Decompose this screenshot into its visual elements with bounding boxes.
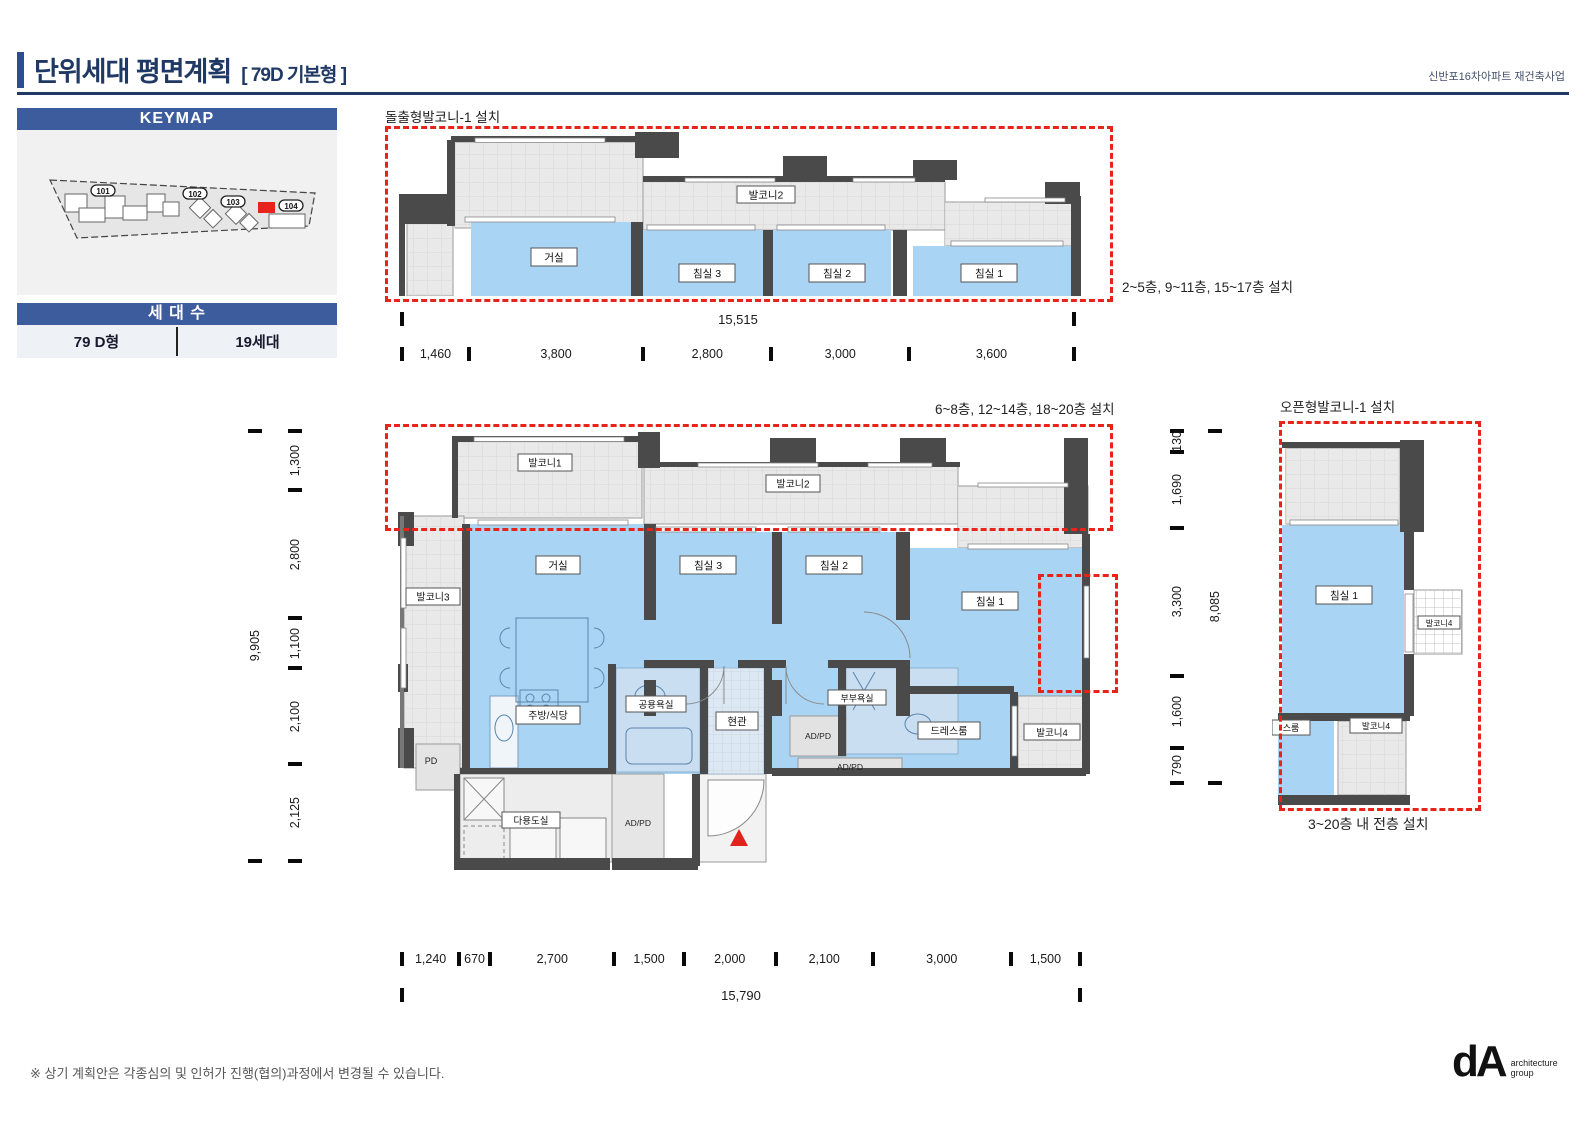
room-label-living: 거실: [544, 252, 563, 264]
page-title-text: 단위세대 평면계획: [34, 57, 231, 87]
logo-mark: dA: [1452, 1042, 1505, 1082]
unit-type: 79 D형: [17, 325, 176, 358]
open-plan-label: 오픈형발코니-1 설치: [1280, 396, 1395, 416]
page-title: 단위세대 평면계획[ 79D 기본형 ]: [34, 50, 346, 89]
room-label-entrance: 현관: [727, 716, 747, 728]
top-plan-floors-note: 2~5층, 9~11층, 15~17층 설치: [1122, 276, 1293, 296]
keymap-badge-103: 103: [226, 198, 240, 207]
keymap-body: 101 102 103 104: [17, 130, 337, 295]
dim-seg: 790: [1168, 748, 1186, 783]
room-label-balcony4-low: 발코니4: [1362, 721, 1390, 731]
room-label-balcony1: 발코니1: [528, 458, 562, 470]
dim-seg: 1,240: [402, 951, 459, 967]
room-label-bed1: 침실 1: [976, 596, 1004, 608]
dim-seg: 1,460: [402, 346, 469, 362]
room-label-dress-partial: 스룸: [1283, 723, 1300, 733]
dim-seg: 1,600: [1168, 676, 1186, 748]
room-label-living: 거실: [548, 560, 567, 572]
title-accent-bar: [17, 52, 24, 88]
dim-seg: 2,125: [286, 764, 304, 861]
dim-seg: 3,000: [771, 346, 909, 362]
dim-seg: 2,100: [286, 668, 304, 764]
room-label-bed2: 침실 2: [823, 268, 851, 280]
room-label-adpd-2: AD/PD: [837, 762, 863, 772]
page-subtitle: [ 79D 기본형 ]: [241, 65, 346, 86]
room-label-bed1: 침실 1: [1330, 590, 1358, 602]
room-label-bed3: 침실 3: [694, 560, 722, 572]
room-label-pd: PD: [425, 756, 438, 766]
dim-seg: 2,700: [490, 951, 614, 967]
units-header: 세 대 수: [17, 303, 337, 325]
dim-left-total: 9,905: [246, 431, 264, 861]
room-label-adpd-1: AD/PD: [805, 731, 831, 741]
room-label-bed1: 침실 1: [975, 268, 1003, 280]
dim-seg: 3,000: [873, 951, 1011, 967]
dim-seg: 1,100: [286, 618, 304, 668]
dim-top-total: 15,515: [402, 311, 1074, 327]
project-name: 신반포16차아파트 재건축사업: [1428, 68, 1565, 84]
room-label-adpd-3: AD/PD: [625, 818, 651, 828]
plan-sheet: 단위세대 평면계획[ 79D 기본형 ] 신반포16차아파트 재건축사업 KEY…: [0, 0, 1587, 1123]
room-label-balcony3: 발코니3: [416, 592, 450, 604]
dim-seg: 3,800: [469, 346, 643, 362]
keymap-badge-102: 102: [188, 190, 202, 199]
dim-seg: 2,800: [286, 490, 304, 618]
open-plan-drawing: 침실 1 발코니4 스룸 발코니4: [1272, 418, 1477, 810]
logo-text: architecture group: [1511, 1058, 1558, 1078]
main-plan-floors-note: 6~8층, 12~14층, 18~20층 설치: [935, 398, 1115, 418]
keymap-header: KEYMAP: [17, 108, 337, 130]
dim-right-segments: 130 1,690 3,300 1,600 790: [1168, 431, 1186, 783]
room-label-dress: 드레스룸: [931, 726, 968, 738]
dim-seg: 1,500: [1011, 951, 1080, 967]
open-plan-floors-note: 3~20층 내 전층 설치: [1308, 814, 1428, 834]
dim-seg: 670: [459, 951, 490, 967]
dim-seg: 3,300: [1168, 528, 1186, 676]
dim-seg: 1,300: [286, 431, 304, 490]
room-label-bed2: 침실 2: [820, 560, 848, 572]
top-plan-drawing: 발코니2 거실 침실 3 침실 2 침실 1: [385, 126, 1108, 296]
unit-count: 19세대: [178, 325, 337, 358]
room-label-utility: 다용도실: [514, 816, 549, 827]
logo-text-line2: group: [1511, 1068, 1534, 1078]
dim-seg: 3,600: [909, 346, 1074, 362]
units-row: 79 D형 19세대: [17, 325, 337, 358]
logo-text-line1: architecture: [1511, 1058, 1558, 1068]
top-plan-label: 돌출형발코니-1 설치: [385, 106, 500, 126]
dim-bottom-segments: 1,240 670 2,700 1,500 2,000 2,100 3,000 …: [402, 951, 1080, 967]
header-rule: [17, 92, 1569, 95]
dim-seg: 130: [1168, 431, 1186, 452]
dim-bottom-total: 15,790: [402, 987, 1080, 1003]
room-label-bath-master: 부부욕실: [840, 694, 873, 704]
dim-top-segments: 1,460 3,800 2,800 3,000 3,600: [402, 346, 1074, 362]
dim-seg: 2,800: [643, 346, 771, 362]
keymap-badge-101: 101: [96, 187, 110, 196]
room-label-balcony4: 발코니4: [1036, 728, 1068, 739]
dim-seg: 1,500: [614, 951, 683, 967]
logo: dA architecture group: [1452, 1042, 1558, 1082]
keymap-badge-104: 104: [284, 202, 298, 211]
room-label-balcony2: 발코니2: [776, 479, 810, 491]
room-label-balcony4-out: 발코니4: [1426, 618, 1453, 628]
room-label-bath-common: 공용욕실: [639, 700, 674, 711]
room-label-kitchen: 주방/식당: [528, 710, 568, 722]
room-label-bed3: 침실 3: [693, 268, 721, 280]
main-plan-drawing: 발코니1 발코니2 발코니3 거실 침실 3 침실 2 침실 1 주방/식당 공…: [398, 428, 1098, 873]
footer-disclaimer: ※ 상기 계획안은 각종심의 및 인허가 진행(협의)과정에서 변경될 수 있습…: [30, 1063, 444, 1082]
dim-seg: 2,000: [684, 951, 776, 967]
dim-seg: 2,100: [776, 951, 873, 967]
dim-left-segments: 1,300 2,800 1,100 2,100 2,125: [286, 431, 304, 861]
dim-right-total: 8,085: [1206, 431, 1224, 783]
dim-seg: 1,690: [1168, 452, 1186, 528]
keymap-drawing: 101 102 103 104: [17, 130, 337, 295]
keymap-highlight-red: [258, 202, 275, 213]
room-label-balcony2: 발코니2: [749, 190, 784, 202]
